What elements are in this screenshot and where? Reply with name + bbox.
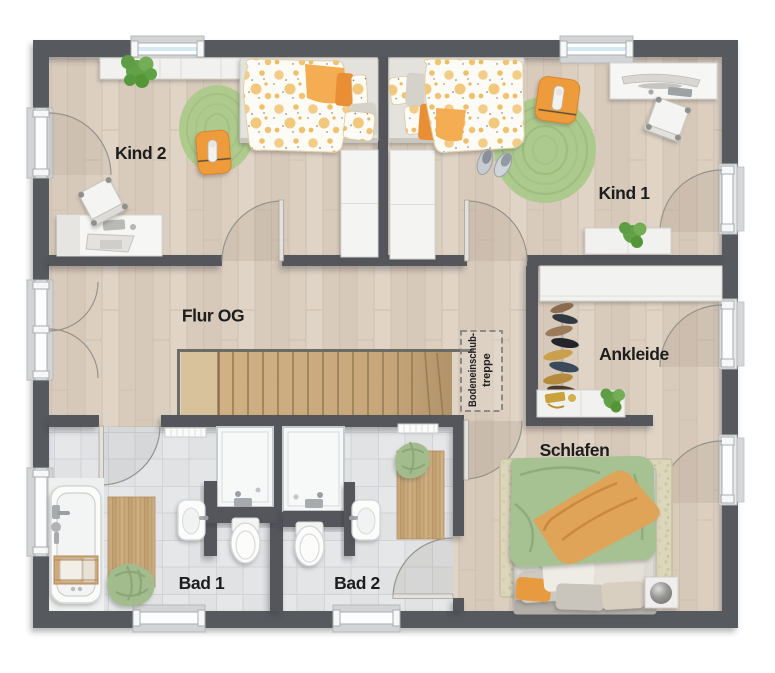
svg-text:Schlafen: Schlafen (540, 440, 610, 460)
svg-text:Bad 1: Bad 1 (179, 573, 225, 593)
svg-text:treppe: treppe (481, 353, 493, 387)
svg-text:Bodeneinschub-: Bodeneinschub- (467, 333, 479, 407)
svg-text:Bad 2: Bad 2 (334, 573, 380, 593)
svg-text:Ankleide: Ankleide (599, 344, 669, 364)
svg-text:Flur OG: Flur OG (182, 306, 244, 326)
svg-text:Kind 1: Kind 1 (598, 183, 650, 203)
svg-text:Kind 2: Kind 2 (115, 143, 167, 163)
